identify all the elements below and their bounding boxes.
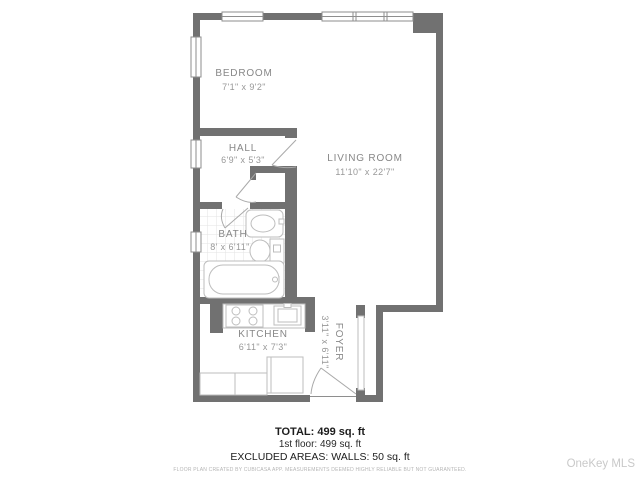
label-living-room: LIVING ROOM: [327, 153, 402, 164]
floor-plan-drawing: BEDROOM 7'1" x 9'2" HALL 6'9" x 5'3" LIV…: [0, 0, 640, 480]
label-kitchen: KITCHEN: [238, 329, 288, 340]
total-area-text: TOTAL: 499 sq. ft: [0, 426, 640, 439]
wall-livingroom-bottom: [383, 305, 443, 312]
kitchen-counter-top: [223, 304, 305, 328]
fridge: [267, 357, 303, 393]
wall-left-3: [193, 168, 200, 232]
first-floor-area-text: 1st floor: 499 sq. ft: [0, 439, 640, 451]
area-summary: TOTAL: 499 sq. ft 1st floor: 499 sq. ft …: [0, 426, 640, 473]
wall-right: [436, 13, 443, 312]
wall-hall-living-upper: [285, 128, 297, 138]
wall-left-4: [193, 252, 200, 402]
wall-left-1: [193, 13, 200, 37]
wall-hall-bath-left: [193, 202, 222, 209]
closet: [256, 173, 285, 202]
wall-closet-left-stub: [250, 166, 256, 180]
wall-closet-bottom: [250, 202, 297, 209]
wall-closet-top: [250, 166, 297, 173]
dims-bath: 8' x 6'11": [210, 242, 250, 252]
kitchen-counter-bottom: [200, 373, 267, 395]
door-entry: [310, 368, 356, 397]
dims-bedroom: 7'1" x 9'2": [222, 82, 266, 92]
wall-bath-living: [285, 168, 297, 305]
bathroom-sink: [246, 210, 283, 237]
label-foyer: FOYER: [333, 323, 344, 361]
wall-foyer-right: [376, 305, 383, 402]
floor-plan-page: BEDROOM 7'1" x 9'2" HALL 6'9" x 5'3" LIV…: [0, 0, 640, 480]
wall-kitchen-stub: [210, 304, 223, 333]
foyer-partition: [358, 316, 364, 390]
disclaimer-text: FLOOR PLAN CREATED BY CUBICASA APP. MEAS…: [0, 467, 640, 473]
label-bedroom: BEDROOM: [215, 68, 272, 79]
wall-bottom-left: [193, 395, 310, 402]
kitchen-tap: [284, 304, 291, 308]
label-hall: HALL: [229, 143, 257, 154]
watermark-onekey-mls: OneKey MLS: [567, 458, 635, 470]
toilet-tank: [270, 239, 284, 263]
dims-foyer: 3'11" x 6'11": [320, 315, 330, 368]
dims-hall: 6'9" x 5'3": [221, 155, 265, 165]
label-bath: BATH: [218, 229, 247, 240]
door-hall-living: [272, 140, 296, 168]
sink-tap: [279, 219, 284, 224]
wall-bedroom-hall: [193, 128, 297, 136]
dims-living-room: 11'10" x 22'7": [335, 167, 394, 177]
toilet-bowl: [250, 240, 270, 262]
excluded-areas-text: EXCLUDED AREAS: WALLS: 50 sq. ft: [0, 451, 640, 463]
dims-kitchen: 6'11" x 7'3": [239, 342, 288, 352]
wall-kitchen-foyer: [305, 297, 315, 332]
